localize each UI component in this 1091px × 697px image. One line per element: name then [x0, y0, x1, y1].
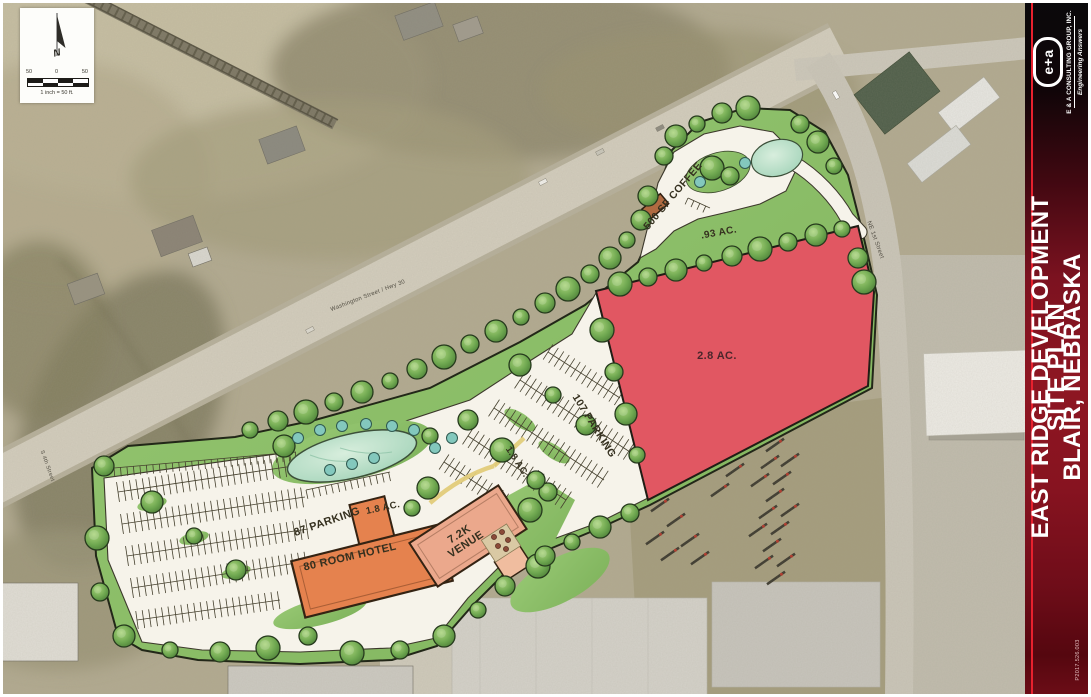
scale-left-value: 50 [26, 69, 32, 75]
north-arrow-scale-box: N 50 0 50 1 inch = 50 ft. [20, 8, 94, 103]
company-tagline: Engineering Answers [1077, 29, 1084, 95]
scale-bar [27, 78, 89, 87]
sheet-title-line3: BLAIR, NEBRASKA [1059, 253, 1087, 480]
ea-logo: e+a [1033, 37, 1063, 87]
label-outlot-acreage: 2.8 AC. [697, 350, 737, 362]
scale-caption: 1 inch = 50 ft. [20, 90, 94, 96]
scale-zero-value: 0 [55, 69, 58, 75]
site-plan-sheet: 500 SF COFFEE .93 AC. 2.8 AC. 107 PARKIN… [0, 0, 1091, 697]
ea-logo-block: e+a E & A CONSULTING GROUP, INC. Enginee… [1030, 10, 1086, 114]
logo-divider [1074, 16, 1075, 108]
scale-right-value: 50 [82, 69, 88, 75]
ea-logo-text: e+a [1040, 49, 1056, 74]
company-name: E & A CONSULTING GROUP, INC. [1066, 10, 1073, 114]
project-number: P2017.526.003 [1075, 639, 1081, 680]
scale-values: 50 0 50 [20, 69, 94, 77]
site-plan-rendering [0, 0, 1091, 697]
